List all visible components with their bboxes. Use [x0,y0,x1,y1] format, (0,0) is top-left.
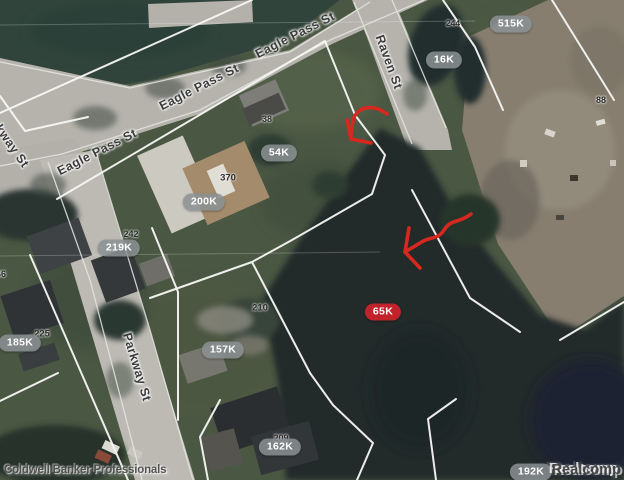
watermark-coldwell-banker: Coldwell Banker Professionals [4,464,166,476]
price-marker-162k[interactable]: 162K [259,439,301,456]
price-marker-65k[interactable]: 65K [365,304,401,321]
price-marker-200k[interactable]: 200K [183,194,225,211]
price-marker-515k[interactable]: 515K [490,16,532,33]
satellite-imagery [0,0,624,480]
price-marker-16k[interactable]: 16K [426,52,462,69]
price-marker-219k[interactable]: 219K [98,240,140,257]
price-marker-54k[interactable]: 54K [261,145,297,162]
watermark-realcomp: Realcomp [552,462,621,478]
price-marker-192k[interactable]: 192K [510,464,552,480]
price-marker-185k[interactable]: 185K [0,335,41,352]
price-marker-157k[interactable]: 157K [202,342,244,359]
map-canvas[interactable]: Eagle Pass St Eagle Pass St Eagle Pass S… [0,0,624,480]
